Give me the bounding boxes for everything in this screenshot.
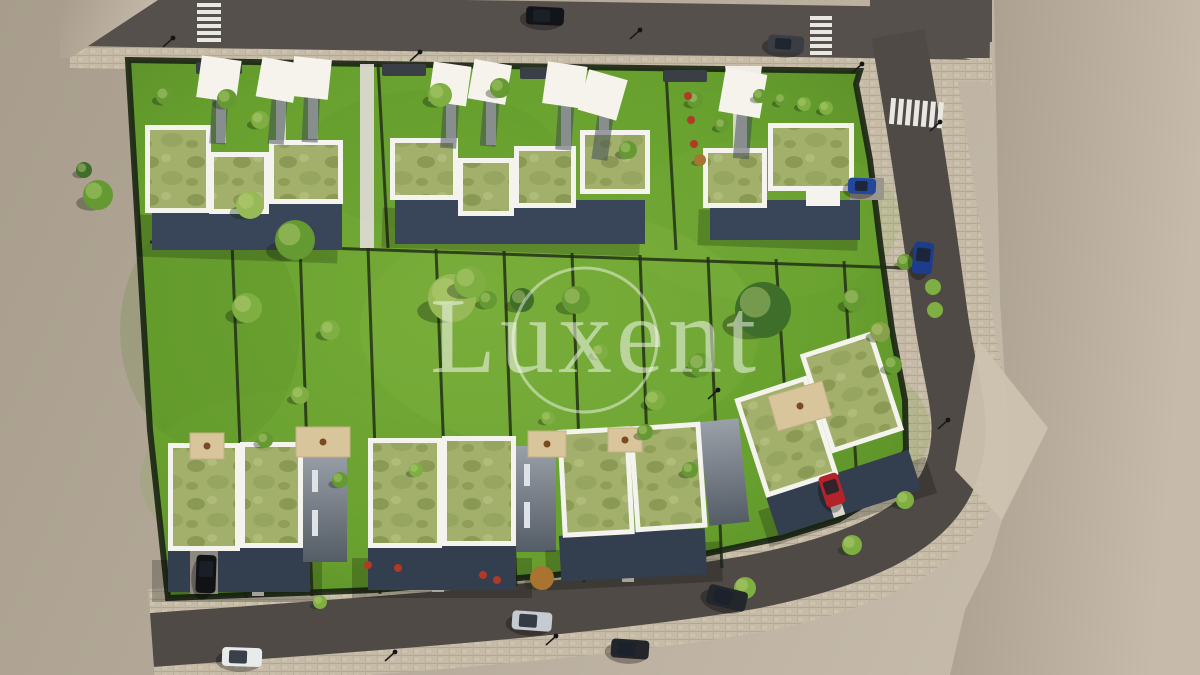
red-shrub	[493, 576, 501, 584]
wood-deck	[190, 433, 224, 459]
planter-tree	[927, 302, 943, 318]
wood-deck	[528, 431, 566, 457]
street-lamp	[393, 650, 398, 655]
autumn-tree	[530, 566, 554, 590]
street-lamp	[860, 62, 865, 67]
deck-furniture	[544, 441, 551, 448]
autumn-tree	[694, 154, 706, 166]
wood-deck	[608, 428, 642, 452]
car-windshield	[775, 38, 792, 50]
street-lamp	[171, 36, 176, 41]
house-pair-bottom-3	[545, 418, 749, 590]
tree-highlight	[293, 388, 303, 398]
tree-highlight	[844, 537, 855, 548]
car-windshield	[229, 650, 247, 664]
street-lamp	[554, 634, 559, 639]
car-windshield	[916, 247, 931, 262]
tree-highlight	[683, 463, 692, 472]
deck-furniture	[204, 443, 211, 450]
tree-highlight	[492, 80, 503, 91]
red-shrub	[364, 561, 372, 569]
tree-highlight	[322, 322, 333, 333]
tree-highlight	[798, 98, 806, 106]
tree-highlight	[542, 412, 550, 420]
tree-highlight	[898, 493, 908, 503]
car-windshield	[855, 181, 868, 191]
tree-highlight	[430, 85, 443, 98]
watermark-text: Luxent	[430, 277, 760, 396]
tree-highlight	[278, 223, 300, 245]
deck-furniture	[320, 439, 327, 446]
tree-highlight	[736, 579, 748, 591]
tree-highlight	[314, 596, 322, 604]
green-roof	[168, 442, 303, 551]
street-lamp	[938, 120, 943, 125]
shade-sail	[290, 56, 332, 100]
tree-highlight	[820, 102, 828, 110]
street-lamp	[946, 418, 951, 423]
car-windshield	[519, 614, 538, 628]
red-shrub	[684, 92, 692, 100]
intersection-patch	[870, 0, 992, 42]
deck-furniture	[622, 437, 629, 444]
wood-deck	[296, 427, 350, 457]
red-shrub	[687, 116, 695, 124]
tree-highlight	[258, 433, 267, 442]
tree-highlight	[253, 113, 263, 123]
green-roof	[368, 436, 516, 548]
tree-highlight	[219, 91, 230, 102]
tree-highlight	[776, 94, 784, 102]
car-windshield	[618, 642, 636, 656]
car-windshield	[533, 9, 551, 22]
tree-highlight	[872, 324, 883, 335]
street-lamp	[638, 28, 643, 33]
tree-highlight	[898, 255, 907, 264]
tree-highlight	[716, 119, 724, 127]
site-plan-render: Luxent	[0, 0, 1200, 675]
watermark: Luxent	[430, 268, 760, 412]
tree-highlight	[235, 296, 252, 313]
walkway	[360, 64, 374, 248]
red-shrub	[479, 571, 487, 579]
car-windshield	[199, 561, 214, 577]
house-pair-bottom-2	[352, 436, 556, 598]
tree-highlight	[77, 163, 86, 172]
tree-highlight	[845, 290, 858, 303]
aerial-render-image: Luxent	[0, 0, 1200, 675]
red-shrub	[690, 140, 698, 148]
red-shrub	[394, 564, 402, 572]
street-lamp	[418, 50, 423, 55]
tree-highlight	[158, 89, 168, 99]
tree-highlight	[410, 464, 418, 472]
tree-highlight	[638, 425, 647, 434]
planter-tree	[925, 279, 941, 295]
house-group-top-middle	[381, 130, 650, 256]
tree-highlight	[238, 193, 253, 208]
house-pair-bottom-1	[152, 442, 347, 602]
tree-highlight	[333, 473, 342, 482]
tree-highlight	[621, 143, 631, 153]
tree-highlight	[886, 358, 896, 368]
tree-highlight	[86, 183, 103, 200]
tree-highlight	[754, 90, 762, 98]
